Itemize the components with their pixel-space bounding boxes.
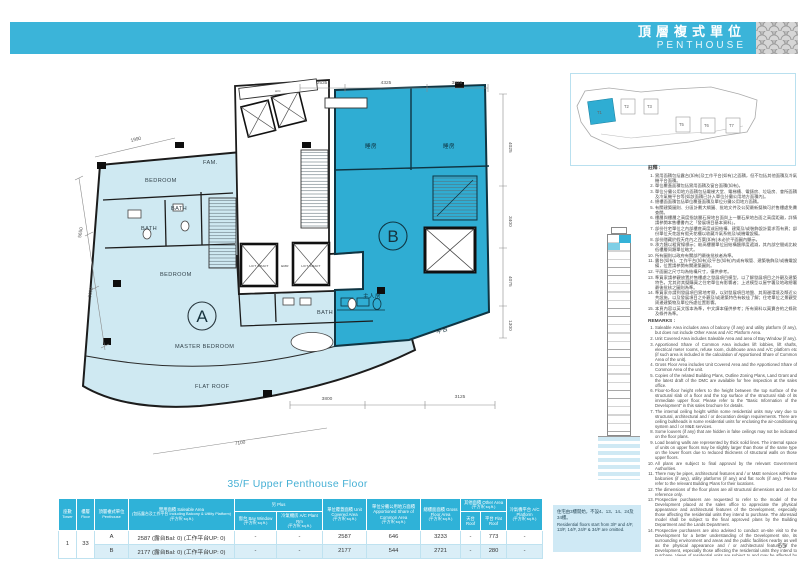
col-saleable-area: 實用面積 Saleable Area(包括露台及工作平台 Including B… [129, 499, 235, 531]
cell-unit: B [95, 544, 129, 558]
label-emr: EMR [281, 264, 289, 268]
cell-covered: 2587 [323, 530, 367, 544]
cell-ac-platform: - [507, 530, 543, 544]
cell-roof: - [461, 544, 481, 558]
cell-gfa: 3233 [421, 530, 461, 544]
col-gross-floor-area: 總樓面面積 Gross Floor Area(平方呎 sq.ft.) [421, 499, 461, 531]
cell-bay: - [235, 544, 277, 558]
cell-ac-platform: - [507, 544, 543, 558]
key-plan-drawing: T1 T2 T3 T5 T6 T7 [571, 74, 795, 165]
dim-left-1: 1990 [130, 136, 142, 144]
col-roof: 天台 Roof [461, 512, 481, 531]
remark-item: 平面圖之尺寸均為結構尺寸，僅供參考。 [655, 269, 797, 274]
cell-saleable: 2177 (露台Bal: 0) (工作平台UP: 0) [129, 544, 235, 558]
plan-caption: 35/F Upper Penthouse Floor [25, 478, 570, 490]
table-row-unit-a: 1 33 A 2587 (露台Bal: 0) (工作平台UP: 0) - - 2… [59, 530, 543, 544]
tower-t1-label: T1 [597, 110, 603, 115]
dim-bottom-2: 3125 [455, 394, 466, 400]
remark-item: There may be pipes, architectural featur… [655, 471, 797, 486]
col-other-area-group: 其他面積 Other Area(平方呎 sq.ft.) [461, 499, 507, 512]
cell-apportioned: 646 [367, 530, 421, 544]
dim-top-2: 4325 [381, 80, 392, 86]
table-row-unit-b: B 2177 (露台Bal: 0) (工作平台UP: 0) - - 2177 5… [59, 544, 543, 558]
tower-t5-label: T5 [679, 122, 685, 127]
dim-left-2: 5650 [77, 226, 85, 238]
cell-gfa: 2721 [421, 544, 461, 558]
building-section-diagram [598, 224, 640, 480]
dim-bottom-1: 3800 [322, 396, 333, 402]
room-bedroom2: BEDROOM [160, 272, 192, 278]
col-apportioned-share: 單位分攤公用地方面積 Apportioned Share of Common A… [367, 499, 421, 531]
remark-item: 部份住宅單位之內部樓底高度或因結構、建築及/或裝飾設計要求而有異；部份單位天花設… [655, 226, 797, 236]
cell-unit: A [95, 530, 129, 544]
remarks-title-en: REMARKS : [648, 319, 797, 324]
tower-t7-label: T7 [729, 123, 735, 128]
page-number: 55 [778, 541, 786, 550]
cell-roof: - [461, 530, 481, 544]
remark-item: Prospective purchasers are also advised … [655, 528, 797, 556]
page-title-zh: 頂層複式單位 [638, 25, 746, 40]
unit-b-letter: B [387, 227, 398, 246]
cell-floor: 33 [77, 530, 95, 558]
page-header-bar: 頂層複式單位 PENTHOUSE [10, 22, 756, 54]
dim-diagonal: 7100 [234, 440, 246, 447]
cell-covered: 2177 [323, 544, 367, 558]
page-title-en: PENTHOUSE [657, 40, 746, 51]
room-bedroom1: BEDROOM [145, 178, 177, 184]
remark-item: Copies of the related Building Plans, Ou… [655, 373, 797, 388]
floor-plan: A B BEDROOM FAM. BATH BATH BEDROOM MASTE… [25, 58, 570, 473]
unit-a-letter: A [196, 307, 208, 326]
tower-t6-label: T6 [704, 123, 710, 128]
col-ac-plant-rm: 冷氣機房 A/C Plant Rm(平方呎 sq.ft.) [277, 512, 323, 531]
cell-saleable: 2587 (露台Bal: 0) (工作平台UP: 0) [129, 530, 235, 544]
dim-top-1: 2535 [317, 80, 328, 86]
room-flat-roof: FLAT ROOF [195, 384, 230, 390]
col-flat-roof: 平台 Flat Roof [481, 512, 507, 531]
col-unit-covered-area: 單位覆蓋面積 Unit Covered Area(平方呎 sq.ft.) [323, 499, 367, 531]
floor-note-zh: 住宅由3樓開始，不設4、13、14、24及34樓。 [557, 509, 637, 520]
unit-a-stair [209, 198, 236, 268]
col-plus-group: 另 Plus [235, 499, 323, 512]
cell-ac-plant: - [277, 544, 323, 558]
floor-note-en: Residential floors start from 3/F and 4/… [557, 522, 637, 532]
cell-bay: - [235, 530, 277, 544]
cell-flat-roof: 280 [481, 544, 507, 558]
room-bedroom-zh2: 睡房 [443, 142, 455, 150]
remark-item: 單位分攤公用地方面積包括電梯大堂、電梯槽、電錶房、垃圾房、會所面積及冷氣機平台等… [655, 189, 797, 199]
remarks-list-en: Saleable Area includes area of balcony (… [648, 325, 797, 556]
cell-tower: 1 [59, 530, 77, 558]
section-tower-floors [607, 234, 631, 436]
brochure-page: 頂層複式單位 PENTHOUSE T1 T2 T3 T5 T6 T7 [0, 0, 800, 565]
remark-item: Gross Floor Area includes Unit Covered A… [655, 362, 797, 372]
col-tower: 座數Tower [59, 499, 77, 531]
remarks-title-zh: 註釋 : [648, 164, 797, 171]
remark-item: The internal ceiling height within some … [655, 409, 797, 429]
section-penthouse-highlight [619, 235, 631, 243]
section-roof-cap [611, 227, 627, 234]
label-lift-shaft-2: LIFT SHAFT [301, 264, 320, 268]
tower-t3-label: T3 [647, 104, 653, 109]
room-fam: FAM. [203, 160, 218, 166]
label-lift-shaft-1: LIFT SHAFT [249, 264, 268, 268]
remark-item: Some louvers (if any) that are hidden in… [655, 429, 797, 439]
remarks-section: 註釋 : 實用面積包括露台(如有)及工作平台(如有)之面積，但不包括其他面積及冷… [648, 164, 797, 556]
ac-platform-shape-2 [325, 98, 367, 108]
remark-item: 單位覆蓋面積包括實用面積及窗台面積(如有)。 [655, 183, 797, 188]
room-master-bedroom: MASTER BEDROOM [175, 344, 234, 350]
remark-item: 準買家亦請到發展項目實地考察，以對發展項目地盤、其周邊環境及鄰近公共設施，以及發… [655, 290, 797, 305]
core-stair [301, 150, 328, 228]
floor-numbering-note: 住宅由3樓開始，不設4、13、14、24及34樓。 Residential fl… [553, 505, 641, 552]
dim-right-2: 3400 [507, 216, 513, 227]
remark-item: All plans are subject to final approval … [655, 461, 797, 471]
remark-item: 實用面積包括露台(如有)及工作平台(如有)之面積，但不包括其他面積及冷氣機平台面… [655, 173, 797, 183]
remark-item: Saleable Area includes area of balcony (… [655, 325, 797, 335]
remark-item: 準買家請參觀放置於售樓處之發展項目模型，以了解發展項目之外觀及建築特色，尤其對其… [655, 275, 797, 290]
remark-item: 有關建築圖則、分區計劃大綱圖、批地文件及公契最新擬稿可於售樓處免費查閱。 [655, 205, 797, 215]
col-bay-window: 窗台 Bay Window(平方呎 sq.ft.) [235, 512, 277, 531]
remark-item: Floor-to-floor height refers to the heig… [655, 388, 797, 408]
site-key-plan: T1 T2 T3 T5 T6 T7 [570, 73, 796, 166]
dim-top-3: 3825 [452, 80, 463, 86]
remark-item: Load bearing walls are represented by th… [655, 440, 797, 460]
area-schedule-table: 座數Tower 樓層Floor 頂層複式單位Penthouse 實用面積 Sal… [58, 498, 543, 559]
room-bath1: BATH [171, 206, 187, 212]
fish-scale-pattern-image [756, 22, 798, 54]
cell-flat-roof: 773 [481, 530, 507, 544]
room-bath2: BATH [141, 226, 157, 232]
section-penthouse-highlight-2 [608, 243, 620, 250]
room-master-zh: 主人房 [363, 292, 381, 300]
remark-item: Apportioned Share of Common Area include… [655, 342, 797, 362]
dim-right-3: 4075 [507, 276, 513, 287]
label-ac: A/C [275, 89, 281, 93]
remark-item: 樓層與樓層之高度指該層石屎地台面與上一層石屎地台面之高度距離，詳情請參閱本售樓書… [655, 215, 797, 225]
cell-ac-plant: - [277, 530, 323, 544]
remark-item: 本頁內容以英文版本為準，中文譯本僅供參考；所有資料以買賣合約之條款及條件為準。 [655, 306, 797, 316]
remark-item: 露台(如有)、工作平台(如有)及平台(如有)內或有喉管、建築裝飾及/或機電設備，… [655, 258, 797, 268]
col-ac-platform: 冷氣機平台 A/C Platform(平方呎 sq.ft.) [507, 499, 543, 531]
cell-apportioned: 544 [367, 544, 421, 558]
section-podium [598, 436, 640, 480]
remark-item: Prospective purchasers are requested to … [655, 497, 797, 527]
remark-item: Unit Covered Area includes Saleable Area… [655, 336, 797, 341]
col-penthouse: 頂層複式單位Penthouse [95, 499, 129, 531]
remark-item: 承力牆以粗實線標示；較高樓層單位因結構牆厚度遞減，其內部空間或比較低樓層同類單位… [655, 242, 797, 252]
room-bath3: BATH [317, 310, 333, 316]
room-bedroom-zh1: 睡房 [365, 142, 377, 150]
col-floor: 樓層Floor [77, 499, 95, 531]
remark-item: 部份隱藏於假天花內之百葉(如有)未必於平面圖內顯示。 [655, 237, 797, 242]
dim-right-4: 1300 [507, 320, 513, 331]
tower-t2-label: T2 [624, 104, 630, 109]
remark-item: 總樓面面積包括單位覆蓋面積及單位分攤公用地方面積。 [655, 199, 797, 204]
remarks-list-zh: 實用面積包括露台(如有)及工作平台(如有)之面積，但不包括其他面積及冷氣機平台面… [648, 173, 797, 316]
dim-right-1: 4025 [507, 142, 513, 153]
remark-item: The dimensions of the floor plans are al… [655, 487, 797, 497]
